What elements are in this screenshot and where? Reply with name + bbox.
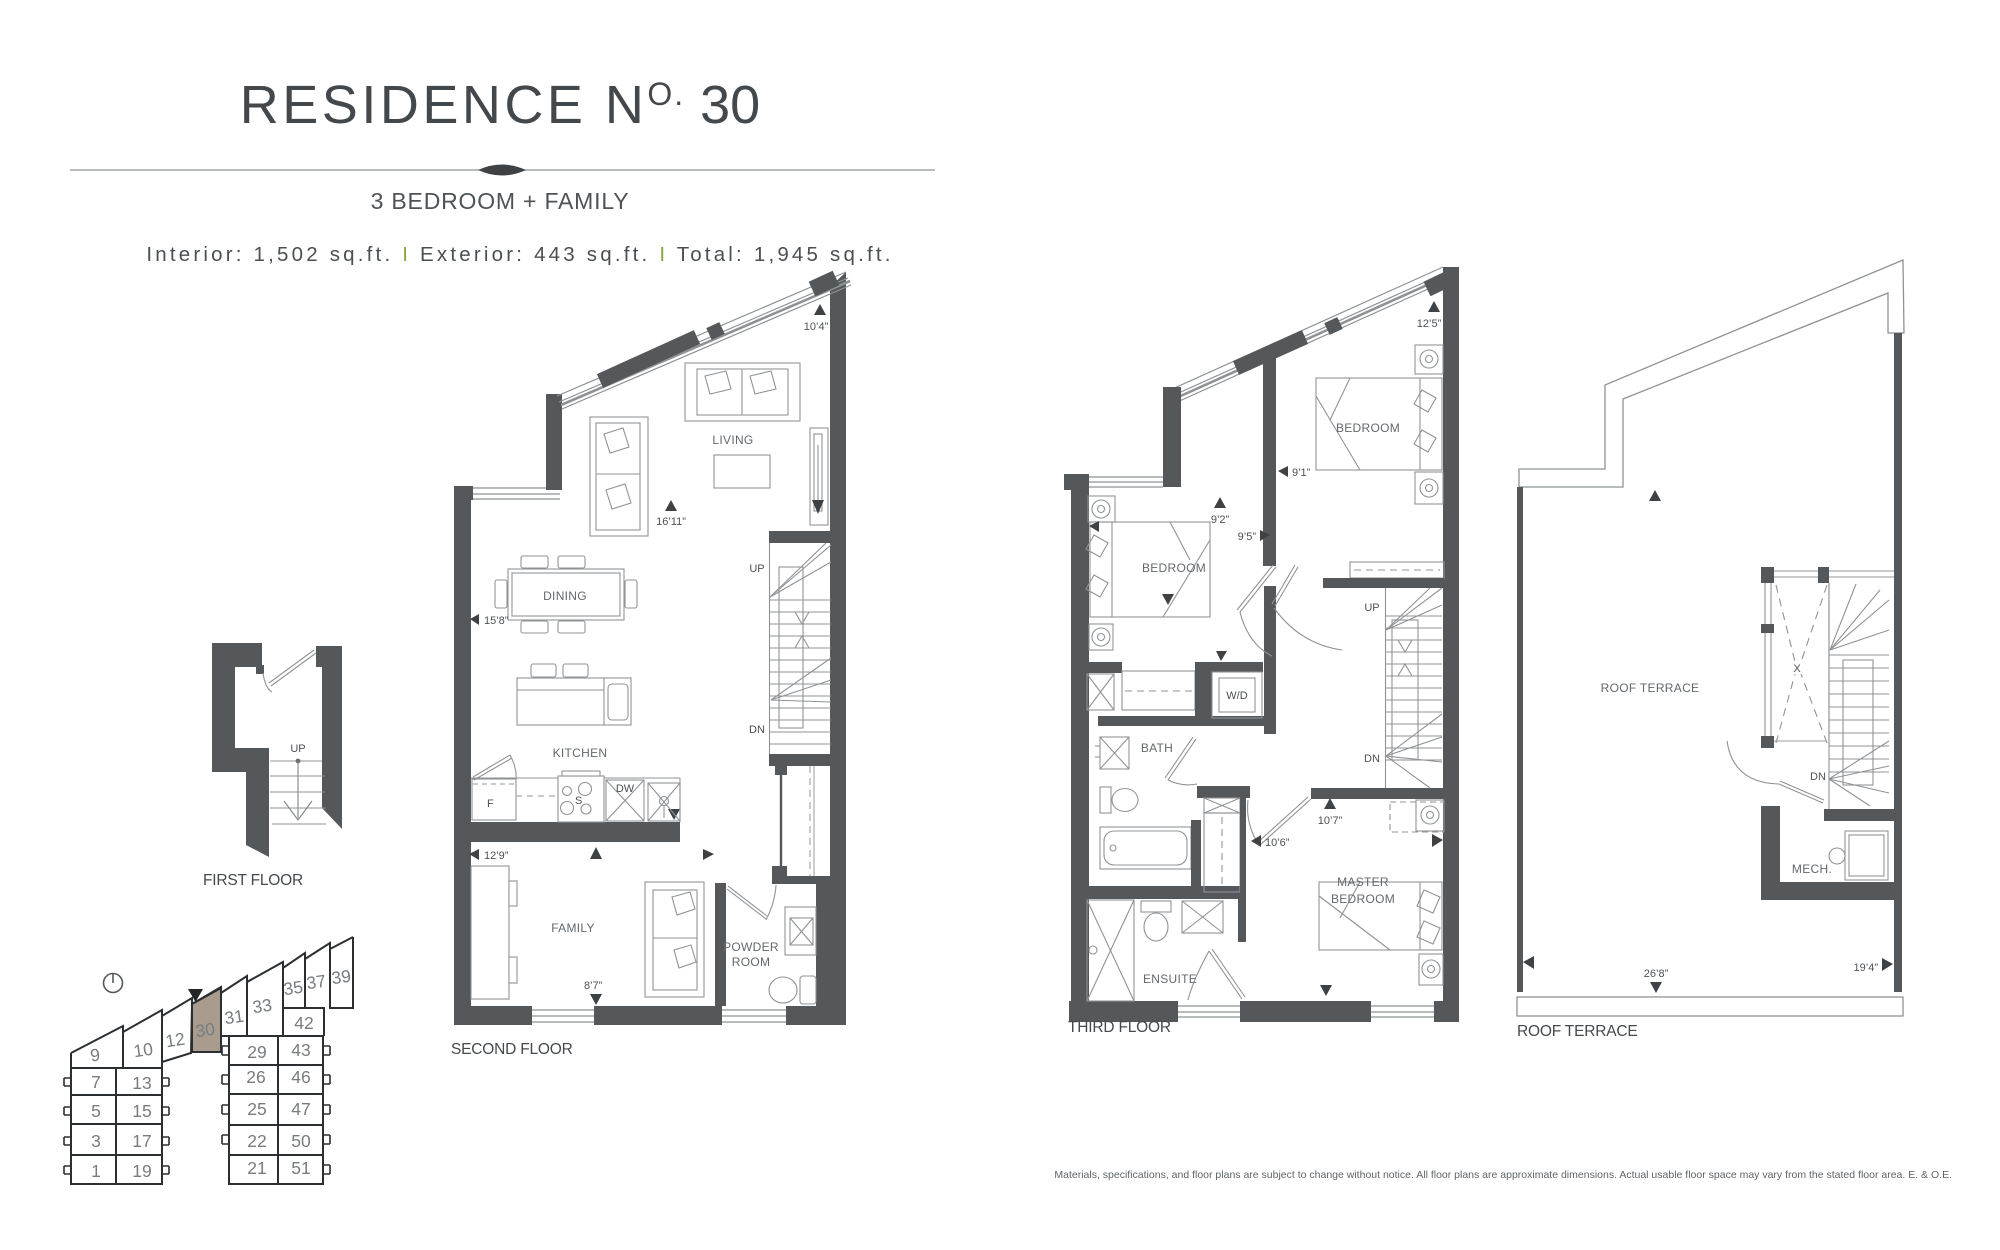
svg-text:UP: UP	[1364, 602, 1379, 614]
svg-text:26’8”: 26’8”	[1644, 968, 1669, 980]
svg-text:DINING: DINING	[543, 589, 587, 603]
svg-text:DN: DN	[1810, 771, 1826, 783]
svg-text:37: 37	[305, 971, 327, 994]
svg-text:SECOND FLOOR: SECOND FLOOR	[451, 1041, 573, 1058]
svg-text:51: 51	[291, 1158, 310, 1178]
svg-text:10’7”: 10’7”	[1318, 815, 1343, 827]
svg-text:25: 25	[247, 1099, 266, 1119]
svg-text:10’6”: 10’6”	[1265, 837, 1290, 849]
svg-text:THIRD FLOOR: THIRD FLOOR	[1068, 1019, 1171, 1036]
svg-text:5: 5	[91, 1101, 101, 1121]
svg-text:3: 3	[91, 1131, 101, 1151]
svg-text:9’5”: 9’5”	[1238, 531, 1257, 543]
svg-text:22: 22	[247, 1131, 266, 1151]
svg-text:ENSUITE: ENSUITE	[1143, 972, 1197, 986]
svg-text:10: 10	[132, 1039, 154, 1062]
svg-text:9’2”: 9’2”	[1211, 514, 1230, 526]
svg-text:FAMILY: FAMILY	[551, 921, 595, 935]
svg-text:43: 43	[291, 1040, 310, 1060]
svg-text:15’8”: 15’8”	[484, 615, 509, 627]
svg-text:16’11”: 16’11”	[656, 516, 686, 528]
svg-text:12: 12	[164, 1029, 186, 1052]
svg-text:W/D: W/D	[1226, 690, 1247, 702]
svg-text:31: 31	[223, 1006, 245, 1029]
svg-text:BEDROOM: BEDROOM	[1336, 421, 1400, 435]
svg-text:BEDROOM: BEDROOM	[1142, 561, 1206, 575]
svg-text:9’1”: 9’1”	[1292, 467, 1311, 479]
svg-text:42: 42	[294, 1013, 313, 1033]
svg-text:19: 19	[132, 1161, 151, 1181]
svg-text:46: 46	[291, 1067, 310, 1087]
svg-text:F: F	[487, 798, 494, 810]
svg-text:KITCHEN: KITCHEN	[553, 746, 608, 760]
svg-text:17: 17	[132, 1131, 151, 1151]
svg-text:UP: UP	[290, 743, 305, 755]
svg-text:MECH.: MECH.	[1792, 862, 1832, 876]
svg-text:26: 26	[246, 1067, 265, 1087]
svg-text:MASTER: MASTER	[1337, 875, 1389, 889]
svg-text:39: 39	[330, 966, 352, 989]
svg-text:3 BEDROOM + FAMILY: 3 BEDROOM + FAMILY	[371, 188, 630, 214]
svg-text:50: 50	[291, 1131, 311, 1151]
svg-text:10’4”: 10’4”	[804, 321, 829, 333]
svg-text:30: 30	[194, 1019, 216, 1042]
svg-text:29: 29	[247, 1042, 266, 1062]
svg-text:DN: DN	[749, 724, 765, 736]
svg-text:ROOF TERRACE: ROOF TERRACE	[1517, 1023, 1637, 1040]
svg-text:12’5”: 12’5”	[1417, 318, 1442, 330]
svg-text:33: 33	[251, 995, 273, 1018]
svg-text:X: X	[1793, 663, 1801, 675]
svg-text:8’7”: 8’7”	[584, 980, 603, 992]
svg-text:1: 1	[91, 1161, 101, 1181]
svg-text:ROOM: ROOM	[732, 955, 771, 969]
svg-text:DW: DW	[616, 783, 635, 795]
svg-text:DN: DN	[1364, 753, 1380, 765]
svg-text:7: 7	[91, 1072, 101, 1092]
svg-text:19’4”: 19’4”	[1854, 962, 1879, 974]
svg-text:15: 15	[132, 1101, 151, 1121]
svg-text:S: S	[575, 795, 582, 807]
svg-text:21: 21	[247, 1158, 266, 1178]
svg-text:13: 13	[132, 1073, 151, 1093]
svg-text:LIVING: LIVING	[712, 433, 753, 447]
svg-text:FIRST FLOOR: FIRST FLOOR	[203, 872, 303, 889]
svg-text:35: 35	[282, 977, 304, 1000]
svg-text:Interior: 1,502 sq.ft. I Exter: Interior: 1,502 sq.ft. I Exterior: 443 s…	[146, 243, 893, 266]
svg-text:12’9”: 12’9”	[484, 850, 509, 862]
svg-text:Materials, specifications, and: Materials, specifications, and floor pla…	[1054, 1169, 1952, 1181]
svg-text:ROOF TERRACE: ROOF TERRACE	[1601, 681, 1700, 695]
svg-text:BATH: BATH	[1141, 741, 1173, 755]
svg-text:UP: UP	[749, 563, 764, 575]
svg-text:POWDER: POWDER	[723, 940, 779, 954]
svg-text:47: 47	[291, 1099, 310, 1119]
svg-text:BEDROOM: BEDROOM	[1331, 892, 1395, 906]
